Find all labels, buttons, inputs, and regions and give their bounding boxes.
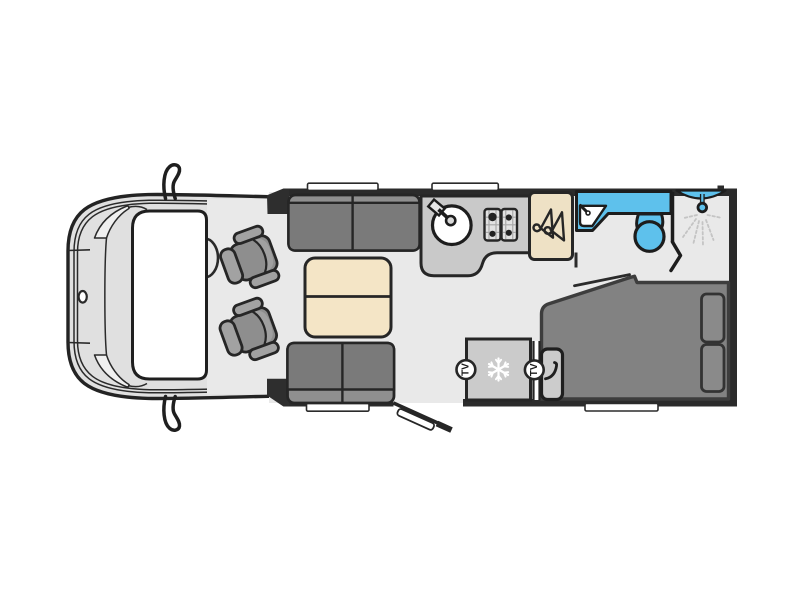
svg-text:TV: TV: [460, 363, 471, 376]
svg-text:TV: TV: [529, 363, 540, 376]
